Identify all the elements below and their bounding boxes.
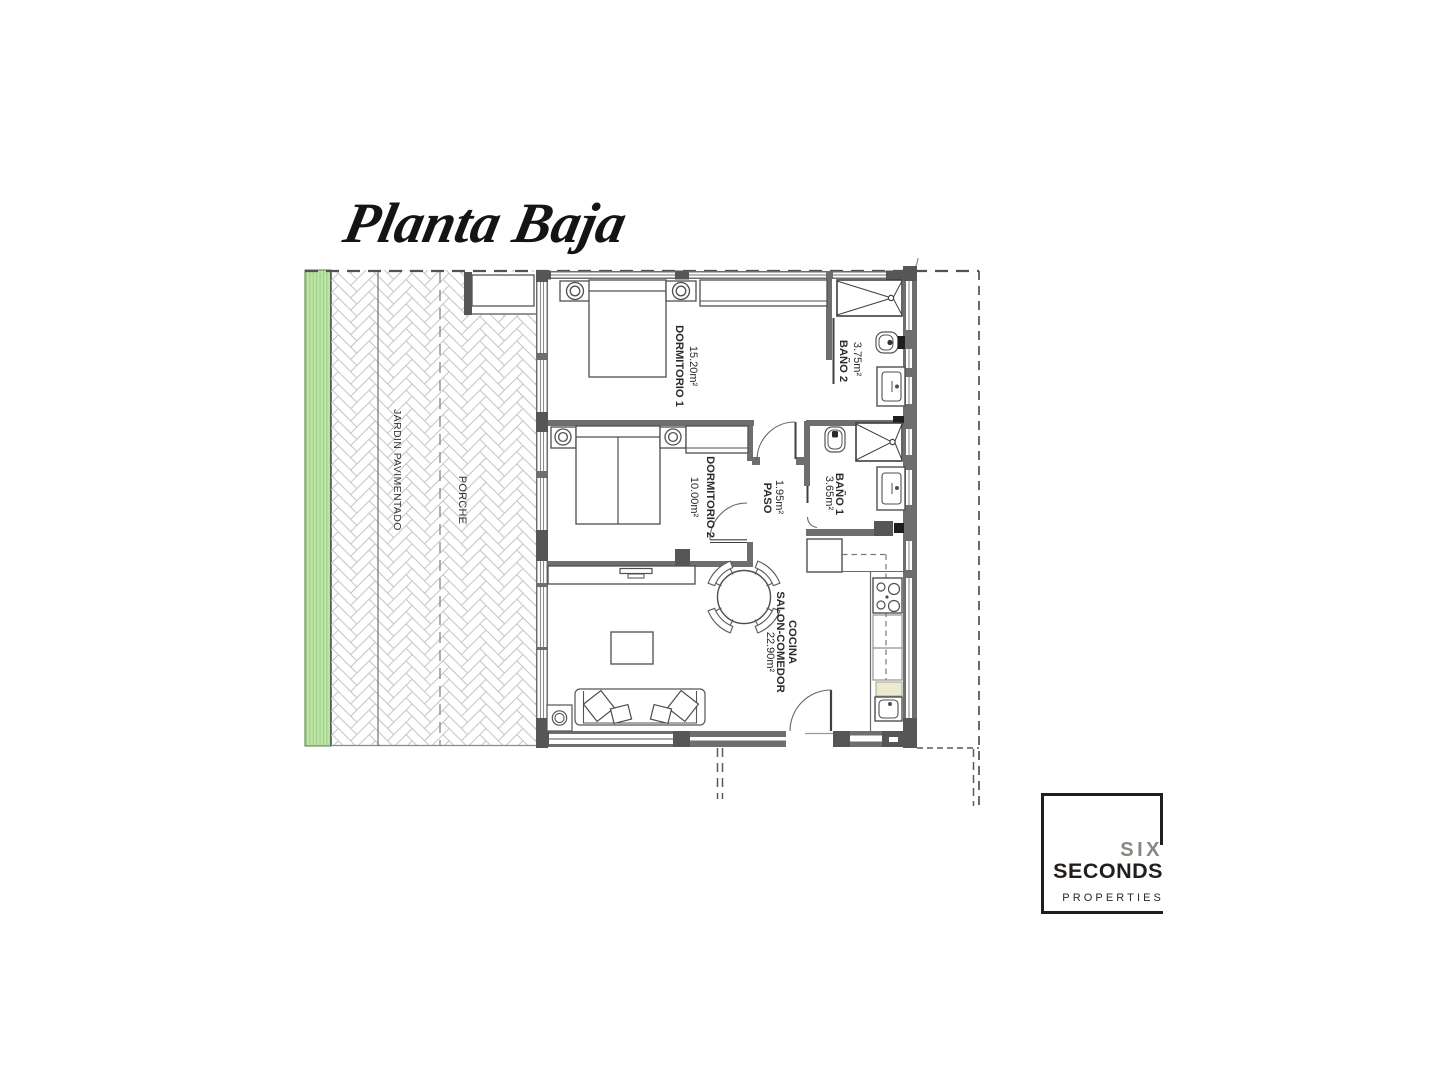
svg-text:SALON-COMEDOR: SALON-COMEDOR (774, 591, 786, 692)
svg-text:3.75m²: 3.75m² (851, 342, 863, 377)
svg-text:BAÑO 2: BAÑO 2 (837, 340, 850, 382)
svg-text:10.00m²: 10.00m² (688, 477, 700, 518)
svg-text:COCINA: COCINA (786, 620, 798, 664)
svg-text:BAÑO 1: BAÑO 1 (833, 473, 846, 515)
svg-text:PASO: PASO (761, 483, 773, 514)
svg-text:PORCHE: PORCHE (456, 476, 468, 524)
svg-text:15.20m²: 15.20m² (687, 346, 699, 387)
svg-text:DORMITORIO 2: DORMITORIO 2 (704, 456, 716, 538)
svg-text:JARDIN PAVIMENTADO: JARDIN PAVIMENTADO (391, 409, 402, 531)
svg-text:DORMITORIO 1: DORMITORIO 1 (673, 325, 685, 407)
svg-text:1.95m²: 1.95m² (773, 480, 785, 515)
